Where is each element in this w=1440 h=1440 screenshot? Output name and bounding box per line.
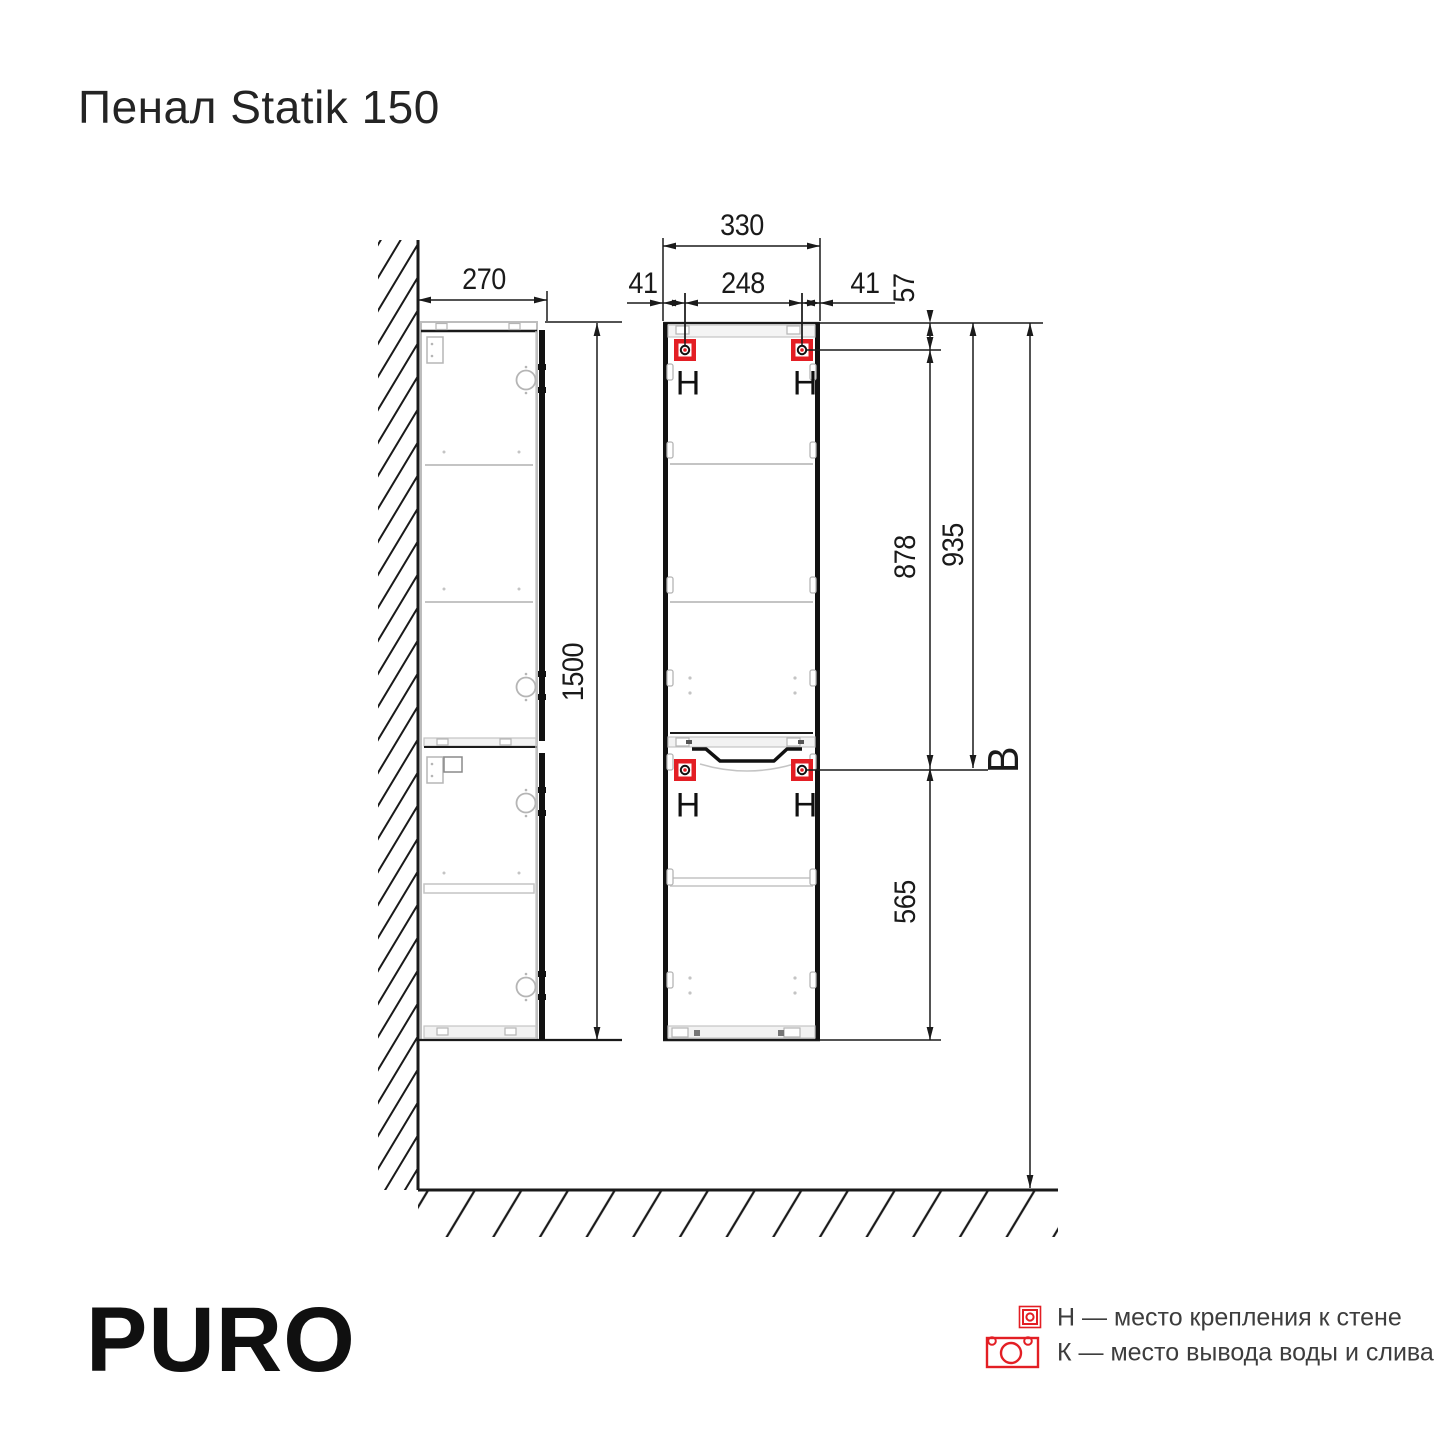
legend-mount-icon	[1020, 1307, 1041, 1328]
brand-logo: PURO	[86, 1288, 356, 1393]
cabinet-front-view	[663, 323, 820, 1040]
dim-front-width: 330	[720, 209, 764, 243]
dim-side-width: 270	[462, 263, 506, 297]
dim-front-right-offset: 41	[850, 267, 879, 301]
mount-label-top-right: Н	[793, 365, 818, 404]
legend-mount-text: Н — место крепления к стене	[1057, 1304, 1402, 1333]
floor-hatch	[418, 1190, 1058, 1237]
dim-mid-span: 878	[889, 535, 923, 579]
dim-top-to-mid: 935	[937, 523, 971, 567]
dim-top-offset: 57	[888, 273, 922, 302]
dim-side-height: 1500	[557, 643, 591, 701]
drawing-page: Пенал Statik 150 270 1500 330 41 248 41 …	[0, 0, 1440, 1440]
mount-label-mid-right: Н	[793, 787, 818, 826]
mount-label-top-left: Н	[676, 365, 701, 404]
dim-install-height: B	[979, 747, 1029, 773]
dim-front-inner: 248	[721, 267, 765, 301]
cabinet-side-view	[418, 322, 622, 1040]
mount-label-mid-left: Н	[676, 787, 701, 826]
legend-drain-icon	[987, 1337, 1038, 1367]
wall-hatch	[378, 240, 418, 1190]
legend-drain-text: К — место вывода воды и слива	[1057, 1339, 1434, 1368]
page-title: Пенал Statik 150	[78, 80, 440, 134]
dim-front-left-offset: 41	[628, 267, 657, 301]
dim-bottom-span: 565	[889, 880, 923, 924]
